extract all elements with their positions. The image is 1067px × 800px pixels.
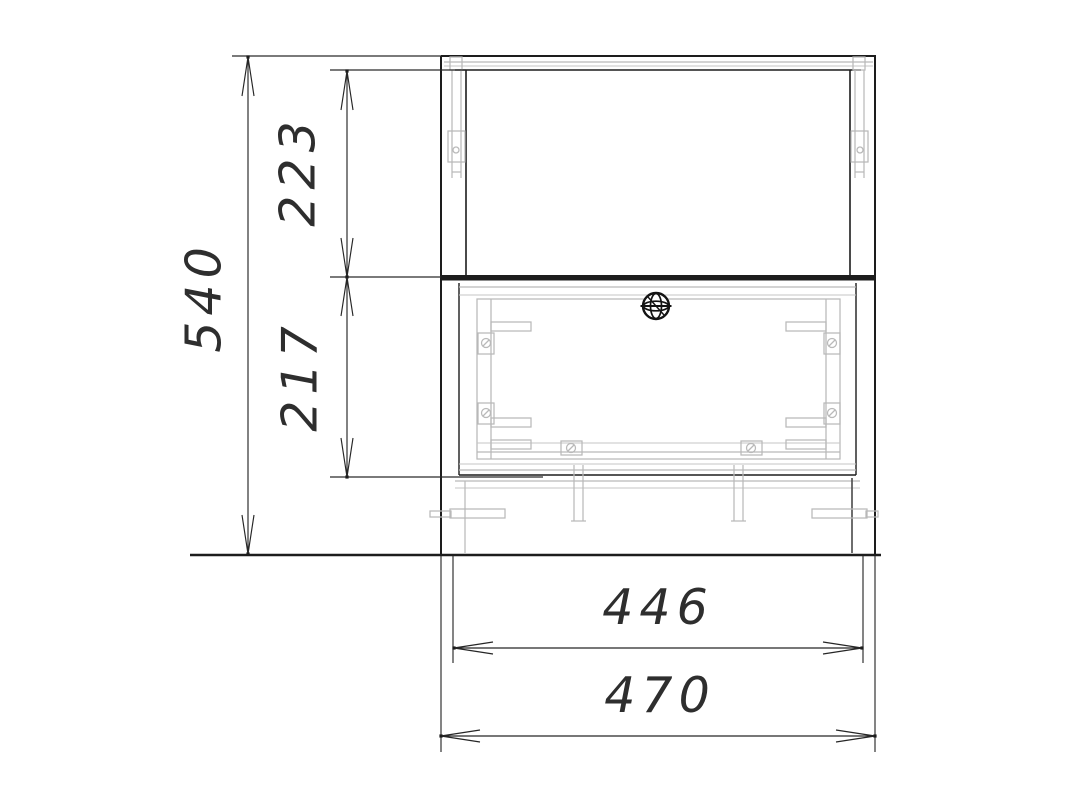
adjuster-bar-left — [450, 509, 505, 518]
mount-bar — [786, 418, 826, 427]
stay-screw-icon — [453, 147, 459, 153]
mount-bar — [491, 322, 531, 331]
dimension-inner-width: 446 — [452, 556, 863, 663]
dimension-top-section-height: 223 — [270, 69, 467, 278]
dimension-label-540: 540 — [176, 241, 233, 353]
leg-left — [571, 465, 586, 521]
dimension-label-446: 446 — [602, 579, 714, 636]
mount-bar — [786, 322, 826, 331]
dimension-label-217: 217 — [272, 320, 329, 432]
plinth-base — [430, 465, 878, 553]
mount-bar — [786, 440, 826, 449]
leg-right — [731, 465, 746, 521]
stay-top-plate — [853, 57, 865, 70]
dimension-label-470: 470 — [604, 667, 716, 724]
flap-door — [459, 283, 856, 475]
lift-door-stay-left — [448, 57, 465, 178]
technical-drawing-canvas: 540 223 217 446 — [0, 0, 1067, 800]
mount-bar — [491, 418, 531, 427]
mount-bar — [491, 440, 531, 449]
adjuster-tab-right — [866, 511, 878, 517]
wireframe-sphere-knob-icon — [641, 293, 672, 319]
cabinet-dimension-drawing: 540 223 217 446 — [0, 0, 1067, 800]
adjuster-bar-right — [812, 509, 867, 518]
dimension-bottom-section-height: 217 — [272, 277, 544, 479]
stay-top-plate — [450, 57, 462, 70]
stay-screw-icon — [857, 147, 863, 153]
middle-shelf-edge — [441, 275, 876, 281]
dimension-label-223: 223 — [270, 115, 327, 227]
lift-door-stay-right — [851, 57, 868, 178]
